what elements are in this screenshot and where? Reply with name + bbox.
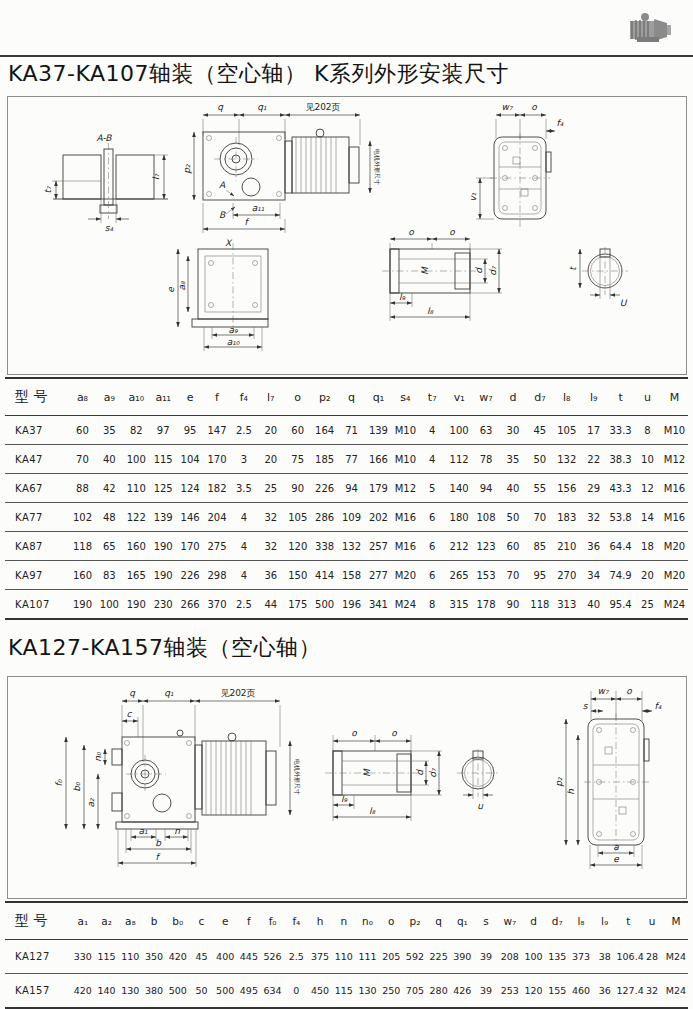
- svg-text:o: o: [391, 728, 397, 738]
- value-cell: 182: [204, 474, 231, 503]
- value-cell: 230: [150, 590, 177, 620]
- dimension-column-header: v₁: [446, 378, 473, 416]
- value-cell: 158: [338, 561, 365, 590]
- value-cell: 94: [473, 474, 500, 503]
- dimension-column-header: M: [664, 902, 688, 940]
- value-cell: M24: [664, 974, 688, 1009]
- value-cell: 8: [634, 416, 661, 445]
- value-cell: 17: [580, 416, 607, 445]
- value-cell: 78: [473, 445, 500, 474]
- svg-text:b: b: [155, 838, 162, 848]
- svg-text:u: u: [477, 801, 484, 811]
- value-cell: 6: [419, 561, 446, 590]
- value-cell: 338: [311, 532, 338, 561]
- dimension-column-header: h: [308, 902, 332, 940]
- svg-text:l₇: l₇: [151, 173, 161, 181]
- value-cell: 42: [96, 474, 123, 503]
- svg-text:o: o: [449, 227, 455, 237]
- value-cell: 153: [473, 561, 500, 590]
- value-cell: 526: [261, 940, 285, 974]
- value-cell: 426: [451, 974, 475, 1009]
- value-cell: 105: [553, 416, 580, 445]
- value-cell: 35: [96, 416, 123, 445]
- value-cell: 20: [257, 445, 284, 474]
- value-cell: 33.3: [607, 416, 634, 445]
- dimension-column-header: f₄: [230, 378, 257, 416]
- value-cell: 32: [257, 532, 284, 561]
- value-cell: 275: [204, 532, 231, 561]
- value-cell: 4: [230, 561, 257, 590]
- svg-text:f₀: f₀: [54, 779, 64, 786]
- value-cell: 390: [451, 940, 475, 974]
- value-cell: 100: [123, 445, 150, 474]
- value-cell: 39: [474, 940, 498, 974]
- svg-text:v₁: v₁: [468, 192, 478, 201]
- page-title-ka127-ka157: KA127-KA157轴装（空心轴）: [8, 633, 321, 663]
- value-cell: 40: [580, 590, 607, 620]
- value-cell: 120: [284, 532, 311, 561]
- dimension-column-header: d: [500, 378, 527, 416]
- value-cell: 30: [500, 416, 527, 445]
- value-cell: 341: [365, 590, 392, 620]
- dimension-column-header: f₀: [261, 902, 285, 940]
- value-cell: 95.4: [607, 590, 634, 620]
- value-cell: M20: [661, 561, 688, 590]
- value-cell: 38: [593, 940, 617, 974]
- svg-text:X: X: [225, 238, 233, 248]
- svg-text:t₇: t₇: [43, 185, 53, 194]
- dimension-column-header: n: [332, 902, 356, 940]
- model-cell: KA67: [5, 474, 69, 503]
- value-cell: 280: [427, 974, 451, 1009]
- side-view-gearmotor: q q₁ 见202页 电机外形尺寸 p₂ A B a₁₁ f X: [182, 102, 381, 248]
- value-cell: 164: [311, 416, 338, 445]
- model-cell: KA77: [5, 503, 69, 532]
- dimension-column-header: l₉: [593, 902, 617, 940]
- model-column-header: 型 号: [5, 378, 69, 416]
- svg-text:l₉: l₉: [341, 794, 348, 804]
- svg-text:q₁: q₁: [164, 688, 174, 698]
- dimension-column-header: t₇: [419, 378, 446, 416]
- value-cell: 2.5: [230, 416, 257, 445]
- dimension-column-header: a₈: [118, 902, 142, 940]
- value-cell: M16: [661, 474, 688, 503]
- svg-text:a₈: a₈: [177, 281, 187, 291]
- dimension-column-header: b: [142, 902, 166, 940]
- value-cell: 104: [177, 445, 204, 474]
- value-cell: 170: [204, 445, 231, 474]
- value-cell: 50: [500, 503, 527, 532]
- value-cell: 8: [419, 590, 446, 620]
- value-cell: 500: [311, 590, 338, 620]
- value-cell: 179: [365, 474, 392, 503]
- value-cell: 45: [526, 416, 553, 445]
- gearmotor-photo-image: [627, 7, 673, 49]
- table-row: KA9716083165190226298436150414158277M206…: [5, 561, 688, 590]
- svg-text:见202页: 见202页: [305, 102, 340, 112]
- value-cell: 414: [311, 561, 338, 590]
- value-cell: 190: [150, 532, 177, 561]
- dimension-column-header: a₉: [96, 378, 123, 416]
- svg-text:q: q: [217, 102, 224, 112]
- value-cell: 210: [553, 532, 580, 561]
- value-cell: 12: [634, 474, 661, 503]
- value-cell: 592: [403, 940, 427, 974]
- value-cell: 140: [95, 974, 119, 1009]
- svg-text:t: t: [568, 266, 578, 271]
- svg-text:c: c: [127, 709, 133, 719]
- value-cell: 226: [177, 561, 204, 590]
- value-cell: 100: [96, 590, 123, 620]
- value-cell: 70: [69, 445, 96, 474]
- value-cell: 36: [580, 532, 607, 561]
- svg-text:B: B: [219, 210, 226, 220]
- svg-text:d: d: [415, 769, 425, 776]
- svg-text:U: U: [620, 298, 628, 308]
- dimension-column-header: l₉: [580, 378, 607, 416]
- value-cell: 74.9: [607, 561, 634, 590]
- svg-text:a: a: [613, 842, 619, 852]
- value-cell: 190: [69, 590, 96, 620]
- value-cell: 313: [553, 590, 580, 620]
- value-cell: 32: [580, 503, 607, 532]
- value-cell: M12: [392, 474, 419, 503]
- svg-text:n: n: [174, 826, 180, 836]
- dimension-column-header: q: [338, 378, 365, 416]
- dimension-column-header: f: [204, 378, 231, 416]
- dimension-column-header: d₇: [526, 378, 553, 416]
- svg-text:f: f: [244, 217, 250, 227]
- value-cell: 71: [338, 416, 365, 445]
- value-cell: 70: [500, 561, 527, 590]
- dimension-column-header: o: [284, 378, 311, 416]
- value-cell: 36: [257, 561, 284, 590]
- svg-text:f₄: f₄: [557, 118, 564, 128]
- svg-text:d₇: d₇: [428, 767, 438, 778]
- value-cell: 3.5: [230, 474, 257, 503]
- value-cell: 277: [365, 561, 392, 590]
- svg-text:l₈: l₈: [427, 306, 434, 316]
- value-cell: 183: [553, 503, 580, 532]
- value-cell: 139: [150, 503, 177, 532]
- svg-text:l₉: l₉: [399, 292, 406, 302]
- svg-text:M: M: [362, 768, 372, 777]
- value-cell: 90: [500, 590, 527, 620]
- ka127-ka157-dimensions-table: 型 号a₁a₂a₈bb₀ceff₀f₄hnn₀op₂qq₁sw₇dd₇l₈l₉t…: [5, 901, 688, 1009]
- dimension-column-header: n₀: [356, 902, 380, 940]
- value-cell: 147: [204, 416, 231, 445]
- dimension-column-header: q: [427, 902, 451, 940]
- value-cell: M24: [664, 940, 688, 974]
- value-cell: 94: [338, 474, 365, 503]
- dimension-column-header: f: [237, 902, 261, 940]
- value-cell: 634: [261, 974, 285, 1009]
- value-cell: 253: [498, 974, 522, 1009]
- svg-text:o: o: [408, 227, 414, 237]
- catalog-photo-thumbnail: [627, 7, 673, 49]
- value-cell: 208: [498, 940, 522, 974]
- value-cell: 39: [474, 974, 498, 1009]
- value-cell: 125: [150, 474, 177, 503]
- value-cell: M10: [661, 416, 688, 445]
- value-cell: 111: [356, 940, 380, 974]
- value-cell: 53.8: [607, 503, 634, 532]
- value-cell: 2.5: [284, 940, 308, 974]
- technical-drawing-1: A-B t₇ l₇ s₄ q q₁ 见202页: [8, 97, 684, 372]
- value-cell: 226: [311, 474, 338, 503]
- value-cell: 460: [569, 974, 593, 1009]
- value-cell: 286: [311, 503, 338, 532]
- value-cell: 190: [123, 590, 150, 620]
- model-cell: KA97: [5, 561, 69, 590]
- value-cell: 22: [580, 445, 607, 474]
- dimension-column-header: o: [379, 902, 403, 940]
- table-row: KA1071901001902302663702.544175500196341…: [5, 590, 688, 620]
- dimension-column-header: M: [661, 378, 688, 416]
- svg-text:电机外形尺寸: 电机外形尺寸: [294, 759, 301, 795]
- value-cell: 250: [379, 974, 403, 1009]
- table-row: KA6788421101251241823.5259022694179M1251…: [5, 474, 688, 503]
- side-view-gearmotor-2: q q₁ 见202页 c n₀ f₀ b₀ a₂ 电机外形尺寸: [54, 688, 301, 867]
- svg-text:w₇: w₇: [502, 102, 514, 112]
- drawing-panel-ka127-ka157: q q₁ 见202页 c n₀ f₀ b₀ a₂ 电机外形尺寸: [7, 676, 687, 899]
- value-cell: 100: [446, 416, 473, 445]
- value-cell: 4: [230, 532, 257, 561]
- value-cell: 315: [446, 590, 473, 620]
- dimension-column-header: s₄: [392, 378, 419, 416]
- value-cell: 140: [446, 474, 473, 503]
- model-cell: KA87: [5, 532, 69, 561]
- value-cell: 127.4: [617, 974, 641, 1009]
- table-row: KA3760358297951472.5206016471139M1041006…: [5, 416, 688, 445]
- value-cell: 178: [473, 590, 500, 620]
- value-cell: 29: [580, 474, 607, 503]
- svg-text:f: f: [155, 852, 161, 862]
- value-cell: M10: [392, 445, 419, 474]
- svg-text:M: M: [420, 266, 430, 275]
- value-cell: 146: [177, 503, 204, 532]
- value-cell: 257: [365, 532, 392, 561]
- dimension-column-header: c: [190, 902, 214, 940]
- value-cell: 18: [634, 532, 661, 561]
- value-cell: 97: [150, 416, 177, 445]
- value-cell: 108: [473, 503, 500, 532]
- value-cell: 139: [365, 416, 392, 445]
- dimension-column-header: l₈: [569, 902, 593, 940]
- value-cell: 130: [356, 974, 380, 1009]
- model-cell: KA37: [5, 416, 69, 445]
- svg-text:a₁₁: a₁₁: [252, 203, 265, 213]
- value-cell: 4: [419, 445, 446, 474]
- dimension-column-header: p₂: [403, 902, 427, 940]
- value-cell: 95: [177, 416, 204, 445]
- bore-keyway-detail: t U: [568, 247, 628, 308]
- svg-text:a₁₀: a₁₀: [227, 337, 240, 347]
- value-cell: 50: [526, 445, 553, 474]
- svg-text:电机外形尺寸: 电机外形尺寸: [374, 149, 381, 185]
- value-cell: 38.3: [607, 445, 634, 474]
- page-title-ka37-ka107: KA37-KA107轴装（空心轴） K系列外形安装尺寸: [8, 59, 509, 89]
- value-cell: 112: [446, 445, 473, 474]
- value-cell: 165: [123, 561, 150, 590]
- value-cell: 14: [634, 503, 661, 532]
- svg-text:e: e: [166, 286, 176, 293]
- dimension-column-header: q₁: [365, 378, 392, 416]
- value-cell: 2.5: [230, 590, 257, 620]
- value-cell: 64.4: [607, 532, 634, 561]
- dimension-column-header: w₇: [473, 378, 500, 416]
- value-cell: 3: [230, 445, 257, 474]
- value-cell: 55: [526, 474, 553, 503]
- technical-drawing-2: q q₁ 见202页 c n₀ f₀ b₀ a₂ 电机外形尺寸: [8, 677, 684, 896]
- value-cell: M24: [661, 590, 688, 620]
- value-cell: 122: [123, 503, 150, 532]
- dimension-column-header: t: [607, 378, 634, 416]
- value-cell: 370: [204, 590, 231, 620]
- value-cell: 35: [500, 445, 527, 474]
- svg-text:d₇: d₇: [488, 265, 498, 276]
- svg-text:s: s: [583, 701, 589, 711]
- value-cell: M12: [661, 445, 688, 474]
- svg-text:b₀: b₀: [72, 782, 82, 792]
- table-row: KA15742014013038050050500495634045011513…: [5, 974, 688, 1009]
- value-cell: 705: [403, 974, 427, 1009]
- svg-text:s₄: s₄: [105, 223, 114, 233]
- dimension-column-header: l₈: [553, 378, 580, 416]
- value-cell: 204: [204, 503, 231, 532]
- value-cell: 85: [526, 532, 553, 561]
- value-cell: 500: [166, 974, 190, 1009]
- dimension-column-header: d: [522, 902, 546, 940]
- value-cell: 60: [500, 532, 527, 561]
- dimension-column-header: p₂: [311, 378, 338, 416]
- svg-text:o: o: [531, 102, 537, 112]
- model-column-header: 型 号: [5, 902, 71, 940]
- value-cell: 4: [419, 416, 446, 445]
- svg-text:w₇: w₇: [598, 686, 610, 696]
- value-cell: 266: [177, 590, 204, 620]
- value-cell: 34: [580, 561, 607, 590]
- value-cell: 25: [257, 474, 284, 503]
- value-cell: 190: [150, 561, 177, 590]
- dimension-column-header: u: [634, 378, 661, 416]
- dimension-column-header: a₈: [69, 378, 96, 416]
- value-cell: 44: [257, 590, 284, 620]
- value-cell: 65: [96, 532, 123, 561]
- svg-text:l₈: l₈: [369, 806, 376, 816]
- value-cell: 212: [446, 532, 473, 561]
- svg-text:f₄: f₄: [655, 701, 662, 711]
- dimension-column-header: l₇: [257, 378, 284, 416]
- ka37-ka107-dimensions-table: 型 号a₈a₉a₁₀a₁₁eff₄l₇op₂qq₁s₄t₇v₁w₇dd₇l₈l₉…: [5, 377, 688, 620]
- model-cell: KA127: [5, 940, 71, 974]
- value-cell: 88: [69, 474, 96, 503]
- value-cell: 82: [123, 416, 150, 445]
- value-cell: M16: [392, 503, 419, 532]
- value-cell: 90: [284, 474, 311, 503]
- end-view: w₇ o f₄ v₁: [468, 102, 564, 227]
- svg-text:A: A: [219, 180, 226, 190]
- table-row: KA127330115110350420454004455262.5375110…: [5, 940, 688, 974]
- value-cell: 420: [71, 974, 95, 1009]
- value-cell: 445: [237, 940, 261, 974]
- value-cell: 380: [142, 974, 166, 1009]
- svg-text:p₂: p₂: [554, 777, 564, 787]
- value-cell: 150: [284, 561, 311, 590]
- section-detail-a-b: A-B t₇ l₇ s₄: [43, 133, 168, 233]
- front-view: e a₈ a₉ a₁₀: [166, 243, 268, 351]
- value-cell: M16: [661, 503, 688, 532]
- value-cell: M16: [392, 532, 419, 561]
- value-cell: 95: [526, 561, 553, 590]
- dimension-column-header: a₁: [71, 902, 95, 940]
- value-cell: 202: [365, 503, 392, 532]
- dimension-column-header: a₁₀: [123, 378, 150, 416]
- svg-text:n₀: n₀: [93, 752, 103, 762]
- value-cell: 115: [332, 974, 356, 1009]
- value-cell: 20: [257, 416, 284, 445]
- value-cell: 48: [96, 503, 123, 532]
- value-cell: 132: [553, 445, 580, 474]
- value-cell: 106.4: [617, 940, 641, 974]
- svg-text:o: o: [351, 728, 357, 738]
- value-cell: 330: [71, 940, 95, 974]
- value-cell: 32: [640, 974, 664, 1009]
- model-cell: KA107: [5, 590, 69, 620]
- value-cell: 350: [142, 940, 166, 974]
- value-cell: 170: [177, 532, 204, 561]
- value-cell: 60: [69, 416, 96, 445]
- value-cell: 118: [526, 590, 553, 620]
- value-cell: 120: [522, 974, 546, 1009]
- value-cell: 180: [446, 503, 473, 532]
- value-cell: 400: [213, 940, 237, 974]
- value-cell: 40: [96, 445, 123, 474]
- value-cell: 124: [177, 474, 204, 503]
- value-cell: 70: [526, 503, 553, 532]
- svg-text:p₂: p₂: [182, 164, 192, 174]
- value-cell: 45: [190, 940, 214, 974]
- value-cell: 166: [365, 445, 392, 474]
- table-row: KA7710248122139146204432105286109202M166…: [5, 503, 688, 532]
- svg-text:a₁: a₁: [138, 826, 148, 836]
- value-cell: 25: [634, 590, 661, 620]
- value-cell: 102: [69, 503, 96, 532]
- value-cell: 43.3: [607, 474, 634, 503]
- value-cell: 105: [284, 503, 311, 532]
- model-cell: KA47: [5, 445, 69, 474]
- value-cell: 109: [338, 503, 365, 532]
- value-cell: 420: [166, 940, 190, 974]
- dimension-column-header: d₇: [545, 902, 569, 940]
- value-cell: 175: [284, 590, 311, 620]
- value-cell: M20: [392, 561, 419, 590]
- value-cell: 115: [150, 445, 177, 474]
- value-cell: 115: [95, 940, 119, 974]
- value-cell: 160: [69, 561, 96, 590]
- value-cell: 298: [204, 561, 231, 590]
- dimension-column-header: f₄: [284, 902, 308, 940]
- end-view-2: w₇ o s f₄ p₂ h a e: [554, 686, 662, 869]
- dimension-column-header: e: [177, 378, 204, 416]
- value-cell: 375: [308, 940, 332, 974]
- dimension-column-header: a₁₁: [150, 378, 177, 416]
- model-cell: KA157: [5, 974, 71, 1009]
- svg-text:h: h: [566, 789, 576, 795]
- value-cell: 130: [118, 974, 142, 1009]
- svg-text:e: e: [613, 854, 620, 864]
- value-cell: 5: [419, 474, 446, 503]
